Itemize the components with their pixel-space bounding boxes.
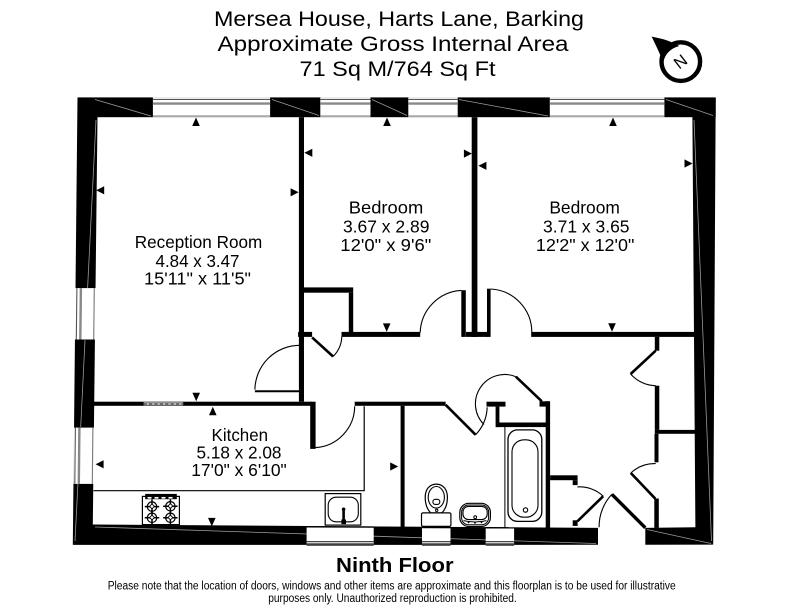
svg-text:12'2" x 12'0": 12'2" x 12'0" bbox=[536, 235, 635, 255]
svg-text:3.67 x 2.89: 3.67 x 2.89 bbox=[343, 217, 430, 237]
svg-text:17'0" x 6'10": 17'0" x 6'10" bbox=[191, 460, 287, 480]
svg-text:71 Sq M/764 Sq Ft: 71 Sq M/764 Sq Ft bbox=[300, 57, 496, 81]
svg-text:Bedroom: Bedroom bbox=[549, 197, 620, 217]
svg-text:Mersea House, Harts Lane, Bark: Mersea House, Harts Lane, Barking bbox=[214, 7, 584, 31]
svg-text:15'11" x 11'5": 15'11" x 11'5" bbox=[144, 268, 251, 288]
svg-text:purposes only. Unauthorized re: purposes only. Unauthorized reproduction… bbox=[268, 593, 517, 605]
svg-text:3.71 x 3.65: 3.71 x 3.65 bbox=[543, 217, 630, 237]
svg-text:Ninth Floor: Ninth Floor bbox=[336, 555, 454, 577]
svg-text:Please note that the location: Please note that the location of doors, … bbox=[108, 580, 676, 592]
svg-text:Bedroom: Bedroom bbox=[349, 197, 424, 217]
svg-text:Reception Room: Reception Room bbox=[135, 232, 263, 252]
svg-text:12'0" x 9'6": 12'0" x 9'6" bbox=[340, 235, 431, 255]
svg-text:Approximate Gross Internal Are: Approximate Gross Internal Area bbox=[218, 32, 569, 56]
